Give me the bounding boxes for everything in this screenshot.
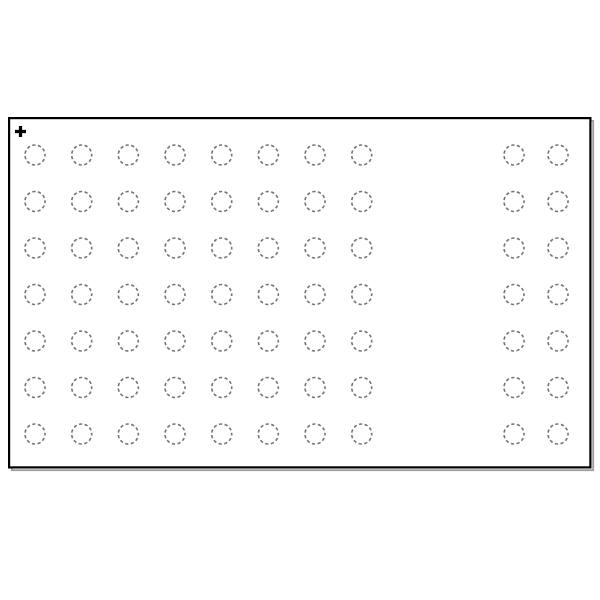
footprint-canvas (0, 0, 600, 600)
footprint-diagram (0, 0, 600, 600)
package-outline (9, 118, 590, 467)
